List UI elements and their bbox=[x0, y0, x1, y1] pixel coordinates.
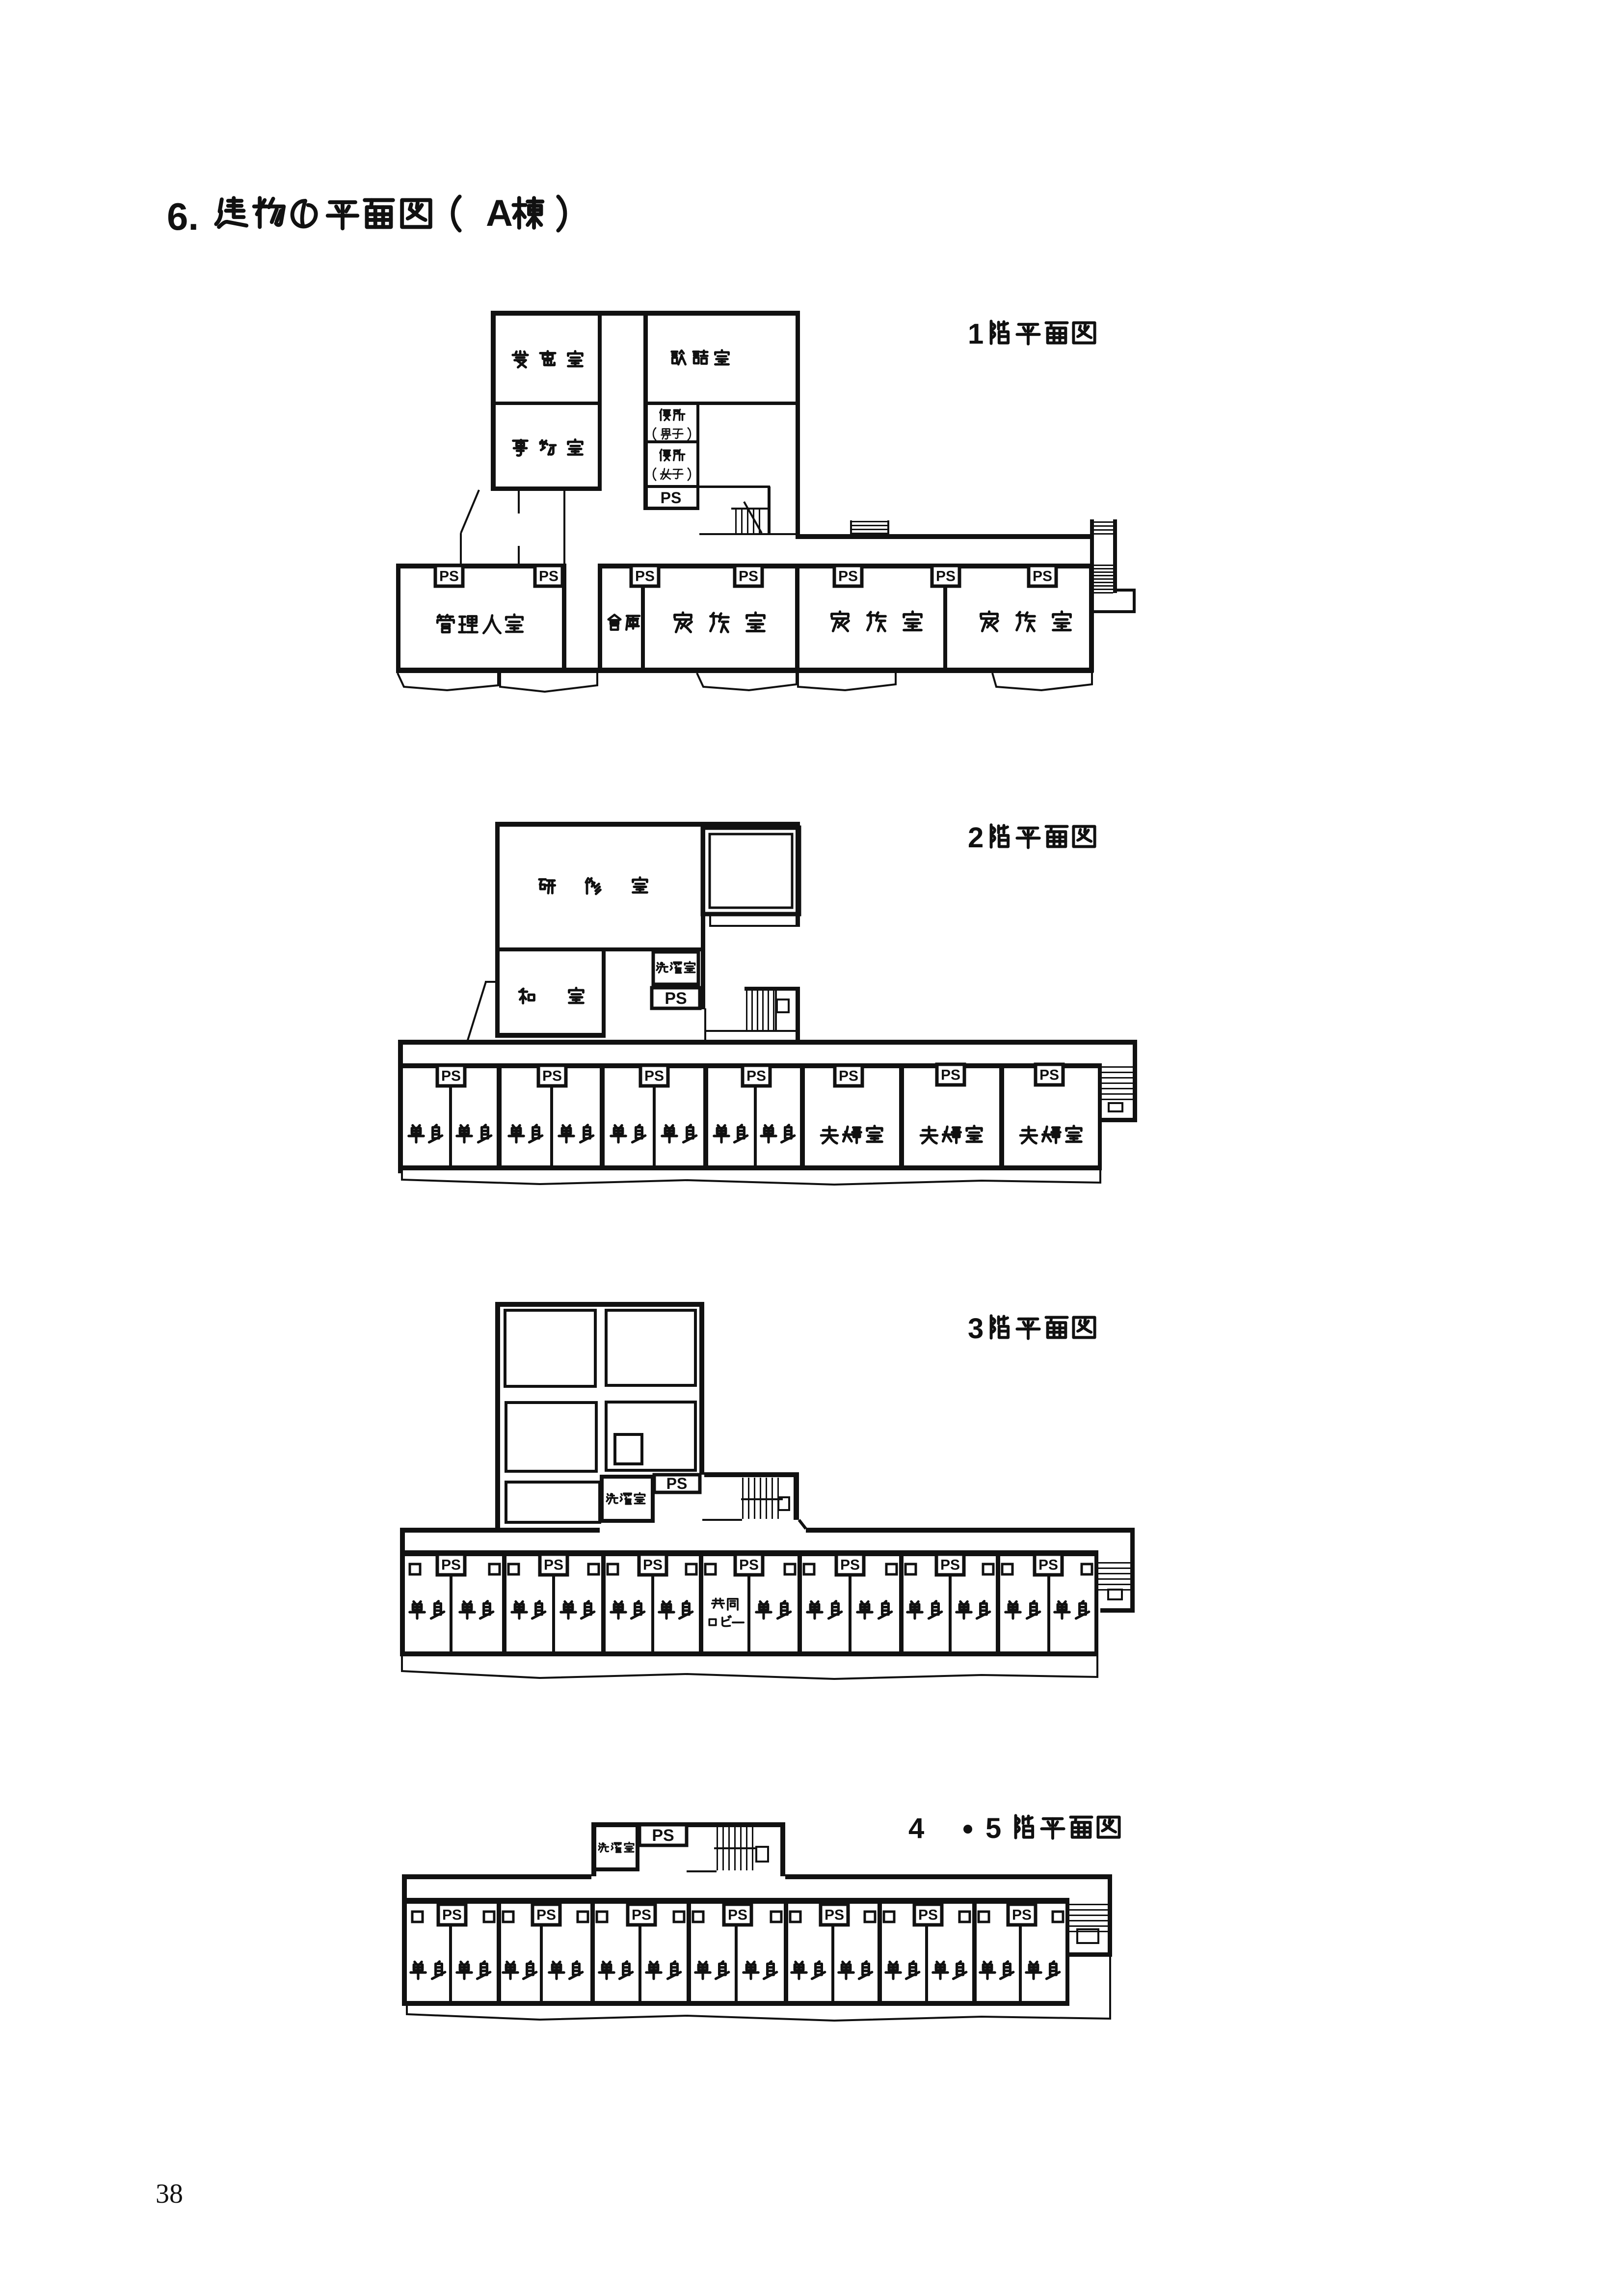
svg-text:PS: PS bbox=[1033, 568, 1052, 585]
svg-text:PS: PS bbox=[439, 568, 459, 585]
svg-text:PS: PS bbox=[739, 568, 758, 585]
svg-text:A: A bbox=[486, 192, 513, 234]
svg-text:PS: PS bbox=[728, 1907, 747, 1923]
svg-text:PS: PS bbox=[441, 1557, 461, 1573]
svg-text:PS: PS bbox=[1039, 1067, 1059, 1083]
svg-text:PS: PS bbox=[936, 568, 956, 585]
svg-text:PS: PS bbox=[840, 1557, 860, 1573]
svg-text:PS: PS bbox=[442, 1907, 462, 1923]
svg-text:PS: PS bbox=[1038, 1557, 1058, 1573]
svg-text:PS: PS bbox=[666, 1475, 688, 1492]
svg-text:4: 4 bbox=[908, 1812, 924, 1844]
svg-text:PS: PS bbox=[746, 1068, 766, 1084]
svg-text:6.: 6. bbox=[167, 195, 199, 238]
svg-text:PS: PS bbox=[652, 1826, 674, 1845]
svg-text:PS: PS bbox=[542, 1068, 562, 1084]
svg-text:PS: PS bbox=[1012, 1907, 1032, 1923]
svg-text:PS: PS bbox=[544, 1557, 563, 1573]
svg-text:PS: PS bbox=[632, 1907, 651, 1923]
svg-text:5: 5 bbox=[985, 1812, 1001, 1844]
svg-text:PS: PS bbox=[739, 1557, 759, 1573]
svg-text:38: 38 bbox=[156, 2179, 183, 2209]
svg-text:PS: PS bbox=[838, 568, 858, 585]
svg-text:PS: PS bbox=[536, 1907, 556, 1923]
svg-text:PS: PS bbox=[441, 1068, 461, 1084]
svg-text:PS: PS bbox=[918, 1907, 938, 1923]
svg-text:PS: PS bbox=[825, 1907, 844, 1923]
svg-text:PS: PS bbox=[941, 1067, 960, 1083]
svg-text:PS: PS bbox=[539, 568, 559, 585]
svg-text:PS: PS bbox=[665, 989, 687, 1008]
svg-text:PS: PS bbox=[839, 1068, 858, 1084]
svg-text:PS: PS bbox=[635, 568, 655, 585]
svg-text:PS: PS bbox=[643, 1557, 663, 1573]
svg-text:PS: PS bbox=[940, 1557, 960, 1573]
svg-text:1: 1 bbox=[968, 318, 984, 350]
svg-text:3: 3 bbox=[968, 1313, 984, 1345]
svg-text:2: 2 bbox=[968, 822, 984, 854]
svg-text:PS: PS bbox=[644, 1068, 664, 1084]
svg-text:PS: PS bbox=[661, 489, 682, 507]
